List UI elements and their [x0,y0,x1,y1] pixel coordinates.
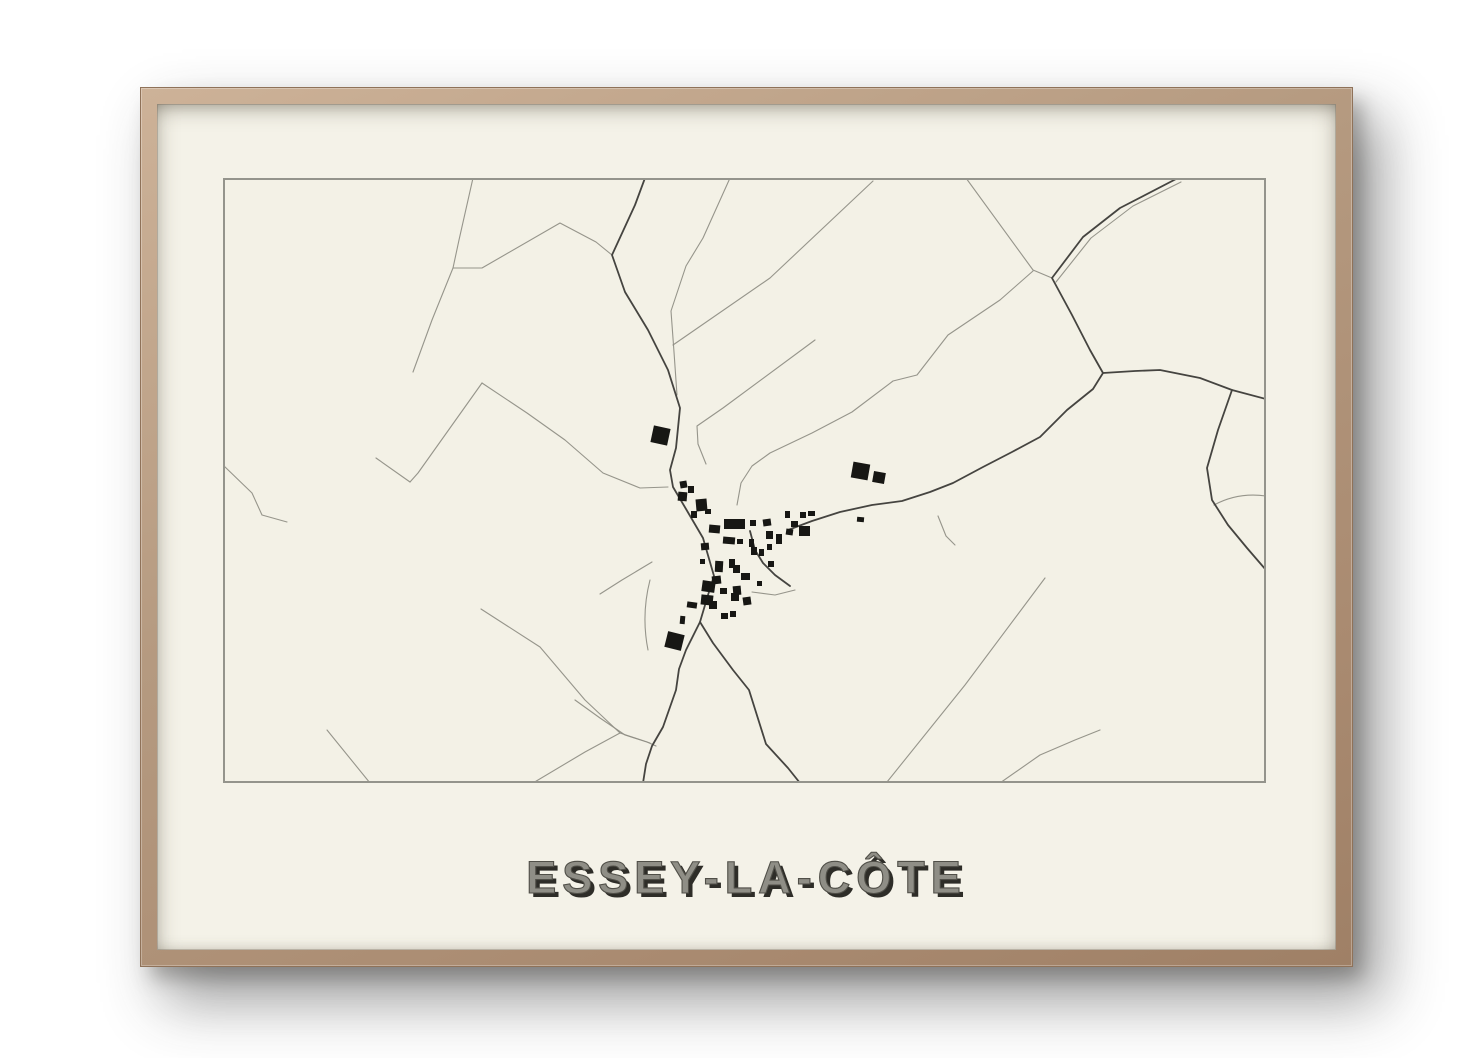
building-footprint [721,613,728,619]
road-light [1000,730,1100,783]
building-footprint [766,531,773,539]
building-footprint [705,509,711,514]
building-footprint [650,425,670,445]
roads-light-layer [223,178,1266,783]
road-light [410,383,482,482]
building-footprint [733,565,740,573]
building-footprint [679,480,687,488]
road-light [413,178,473,372]
building-footprint [731,593,739,601]
poster-paper: ESSEY-LA-CÔTE [157,104,1336,950]
picture-frame: ESSEY-LA-CÔTE [141,88,1352,966]
building-footprint [687,601,698,608]
building-footprint [742,596,751,605]
building-footprint [857,517,864,523]
building-footprint [700,559,705,564]
building-footprint [751,547,757,555]
roads-dark-layer [612,178,1266,783]
road-light [1214,495,1266,505]
building-footprint [724,519,745,529]
road-light [645,580,650,650]
building-footprint [763,518,772,526]
building-footprint [701,543,710,551]
road-light [671,178,730,395]
building-footprint [730,611,736,617]
building-footprint [709,525,721,534]
road-dark [1103,370,1266,399]
poster-title: ESSEY-LA-CÔTE [157,852,1336,904]
road-dark [750,531,790,586]
building-footprint [741,573,750,580]
building-footprint [737,539,743,544]
road-light [453,223,612,268]
building-footprint [750,520,756,526]
building-footprint [664,631,684,651]
building-footprint [688,486,694,493]
building-footprint [768,561,774,567]
building-footprint [786,529,794,536]
road-light [223,465,287,522]
road-light [376,458,410,482]
road-light [600,562,652,594]
road-light [752,590,795,595]
road-light [938,516,955,545]
building-footprint [767,544,772,550]
building-footprint [799,526,810,536]
building-footprint [678,492,688,502]
road-light [887,578,1045,782]
road-light [1056,182,1181,282]
building-footprint [691,511,697,518]
road-dark [612,178,714,783]
map-border [224,179,1265,782]
road-light [673,181,873,345]
building-footprint [759,549,764,556]
road-dark [700,622,800,783]
road-light [575,700,656,746]
building-footprint [701,580,715,593]
road-light [327,730,370,783]
road-light [966,178,1052,278]
map-svg [223,178,1266,783]
building-footprint [723,536,736,544]
map-panel [223,178,1266,783]
building-footprint [851,462,871,481]
building-footprint [720,588,727,594]
building-footprint [785,511,790,518]
road-dark [788,178,1178,530]
building-footprint [800,512,806,518]
road-light [482,383,668,488]
building-footprint [808,511,815,516]
building-footprint [715,561,724,572]
building-footprint [680,616,686,624]
building-footprint [791,521,798,527]
wall-background: ESSEY-LA-CÔTE [0,0,1480,1058]
building-footprint [709,601,717,609]
building-footprint [757,581,762,586]
road-light [697,340,815,464]
road-dark [1207,390,1266,570]
building-footprint [749,539,754,547]
building-footprint [776,534,782,544]
buildings-layer [650,425,885,650]
road-light [533,733,620,783]
road-light [481,609,650,743]
road-light [737,271,1033,505]
building-footprint [872,471,886,484]
